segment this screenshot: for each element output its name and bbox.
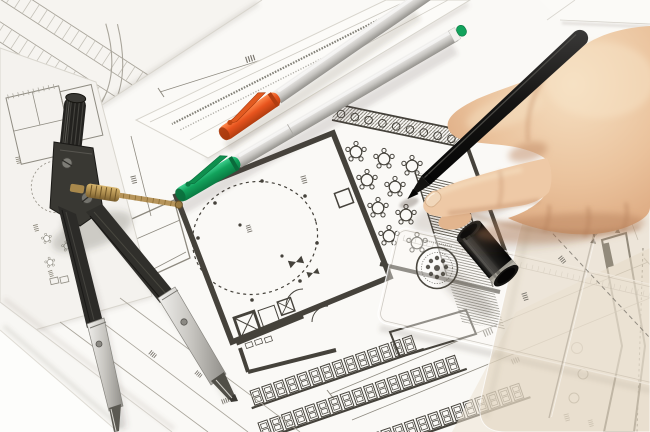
photo-canvas bbox=[0, 0, 650, 432]
architect-photo bbox=[0, 0, 650, 432]
